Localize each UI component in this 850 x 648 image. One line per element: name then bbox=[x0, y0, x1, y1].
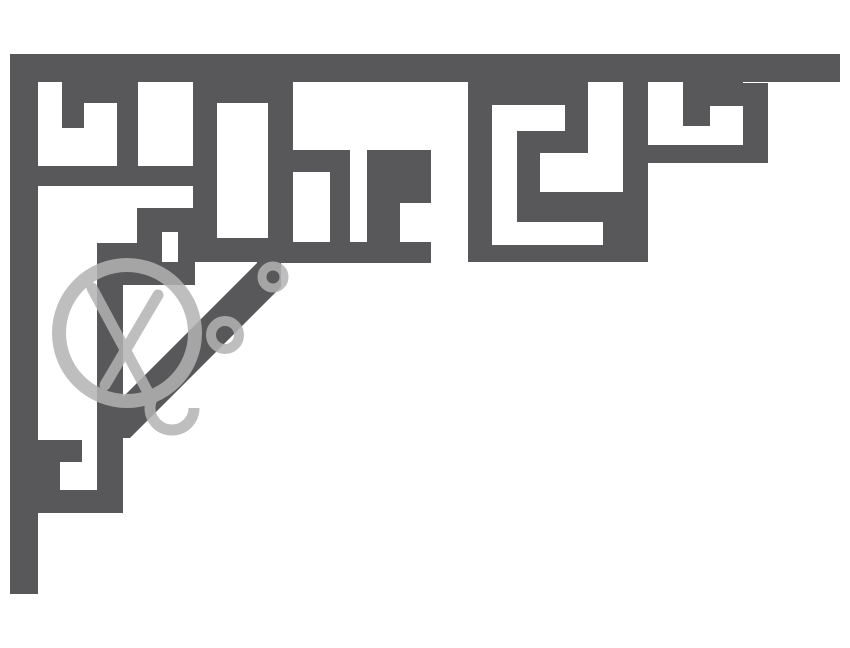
spiral-left-wall bbox=[468, 82, 492, 262]
slot3-left-wall bbox=[193, 82, 217, 262]
band-left bbox=[10, 166, 217, 186]
lintel-spiral bbox=[492, 82, 565, 105]
lintel-slot3 bbox=[217, 82, 268, 103]
corner-bracket-artwork bbox=[0, 0, 850, 648]
lintel-u1-right bbox=[84, 82, 117, 103]
lintel-r2 bbox=[683, 82, 743, 106]
separator-u1-u2 bbox=[117, 82, 138, 167]
foot-bottom-bar bbox=[38, 490, 123, 513]
pendant-left-leg bbox=[367, 203, 400, 243]
spiral-right-wall bbox=[623, 82, 648, 262]
foot-stub bbox=[38, 462, 60, 490]
pillar-u1 bbox=[62, 82, 84, 128]
pillar-r1 bbox=[683, 106, 710, 126]
spiral-stub bbox=[603, 222, 623, 245]
left-rail bbox=[10, 54, 38, 594]
band-right bbox=[648, 145, 768, 163]
fretwork-canvas bbox=[0, 0, 850, 648]
band-middle bbox=[257, 242, 431, 263]
foot-arm bbox=[38, 440, 82, 462]
top-rail bbox=[10, 54, 840, 82]
spiral-stroke-base bbox=[517, 192, 623, 222]
pillar-right-end bbox=[743, 83, 768, 145]
hook-notch bbox=[162, 232, 178, 262]
pendant-top bbox=[367, 150, 431, 203]
